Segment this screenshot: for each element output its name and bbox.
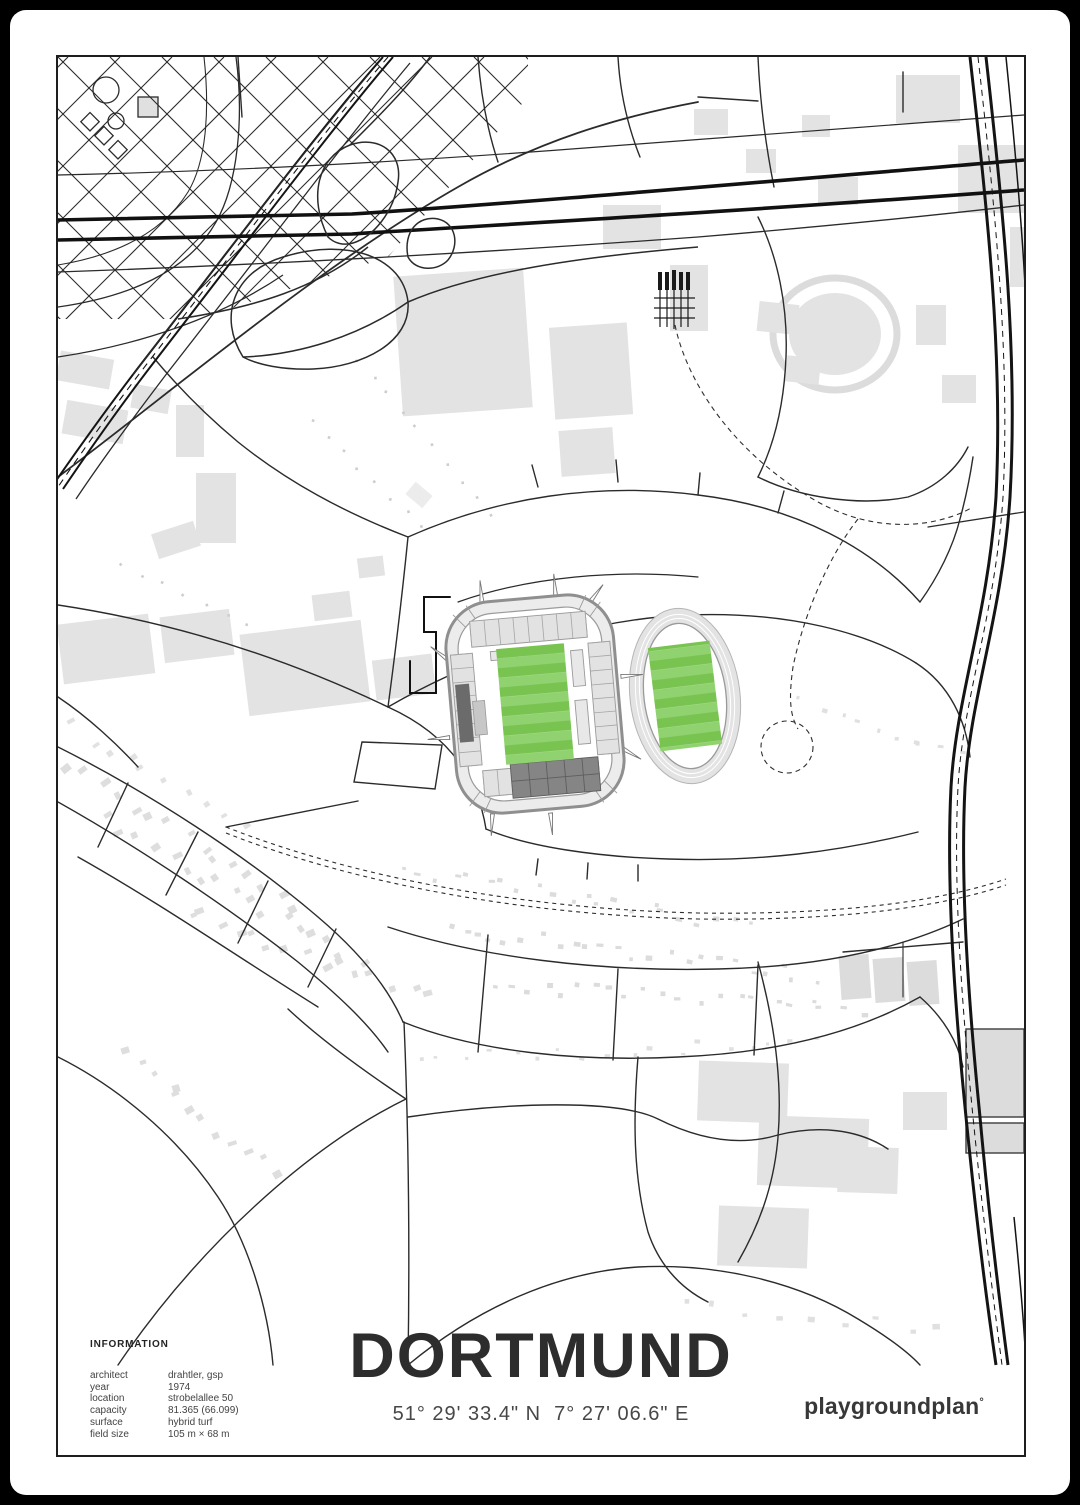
- stadium: [414, 567, 656, 845]
- poster-frame: INFORMATION architectdrahtler, gsp year1…: [56, 55, 1026, 1457]
- map-poster: INFORMATION architectdrahtler, gsp year1…: [10, 10, 1070, 1495]
- stadium-pitch: [496, 643, 574, 764]
- small-house-scatter: [60, 359, 966, 1333]
- city-title: DORTMUND: [58, 1325, 1024, 1388]
- map-area: [58, 57, 1024, 1455]
- park-fountain: [93, 77, 119, 103]
- screenshot-root: { "poster": { "title": "DORTMUND", "coor…: [0, 0, 1080, 1505]
- parking-lot: [354, 742, 442, 789]
- brand-logo: playgroundplan°: [804, 1393, 984, 1420]
- highway-b1: [58, 57, 1024, 369]
- city-map: [58, 57, 1024, 1455]
- park-square: [138, 97, 158, 117]
- brand-mark: °: [979, 1396, 984, 1408]
- info-row-fieldsize: field size105 m × 68 m: [90, 1429, 330, 1441]
- athletics-track: [620, 602, 751, 790]
- tram-loop: [761, 721, 813, 773]
- park-paths: [58, 57, 283, 357]
- athletics-pitch: [648, 641, 722, 752]
